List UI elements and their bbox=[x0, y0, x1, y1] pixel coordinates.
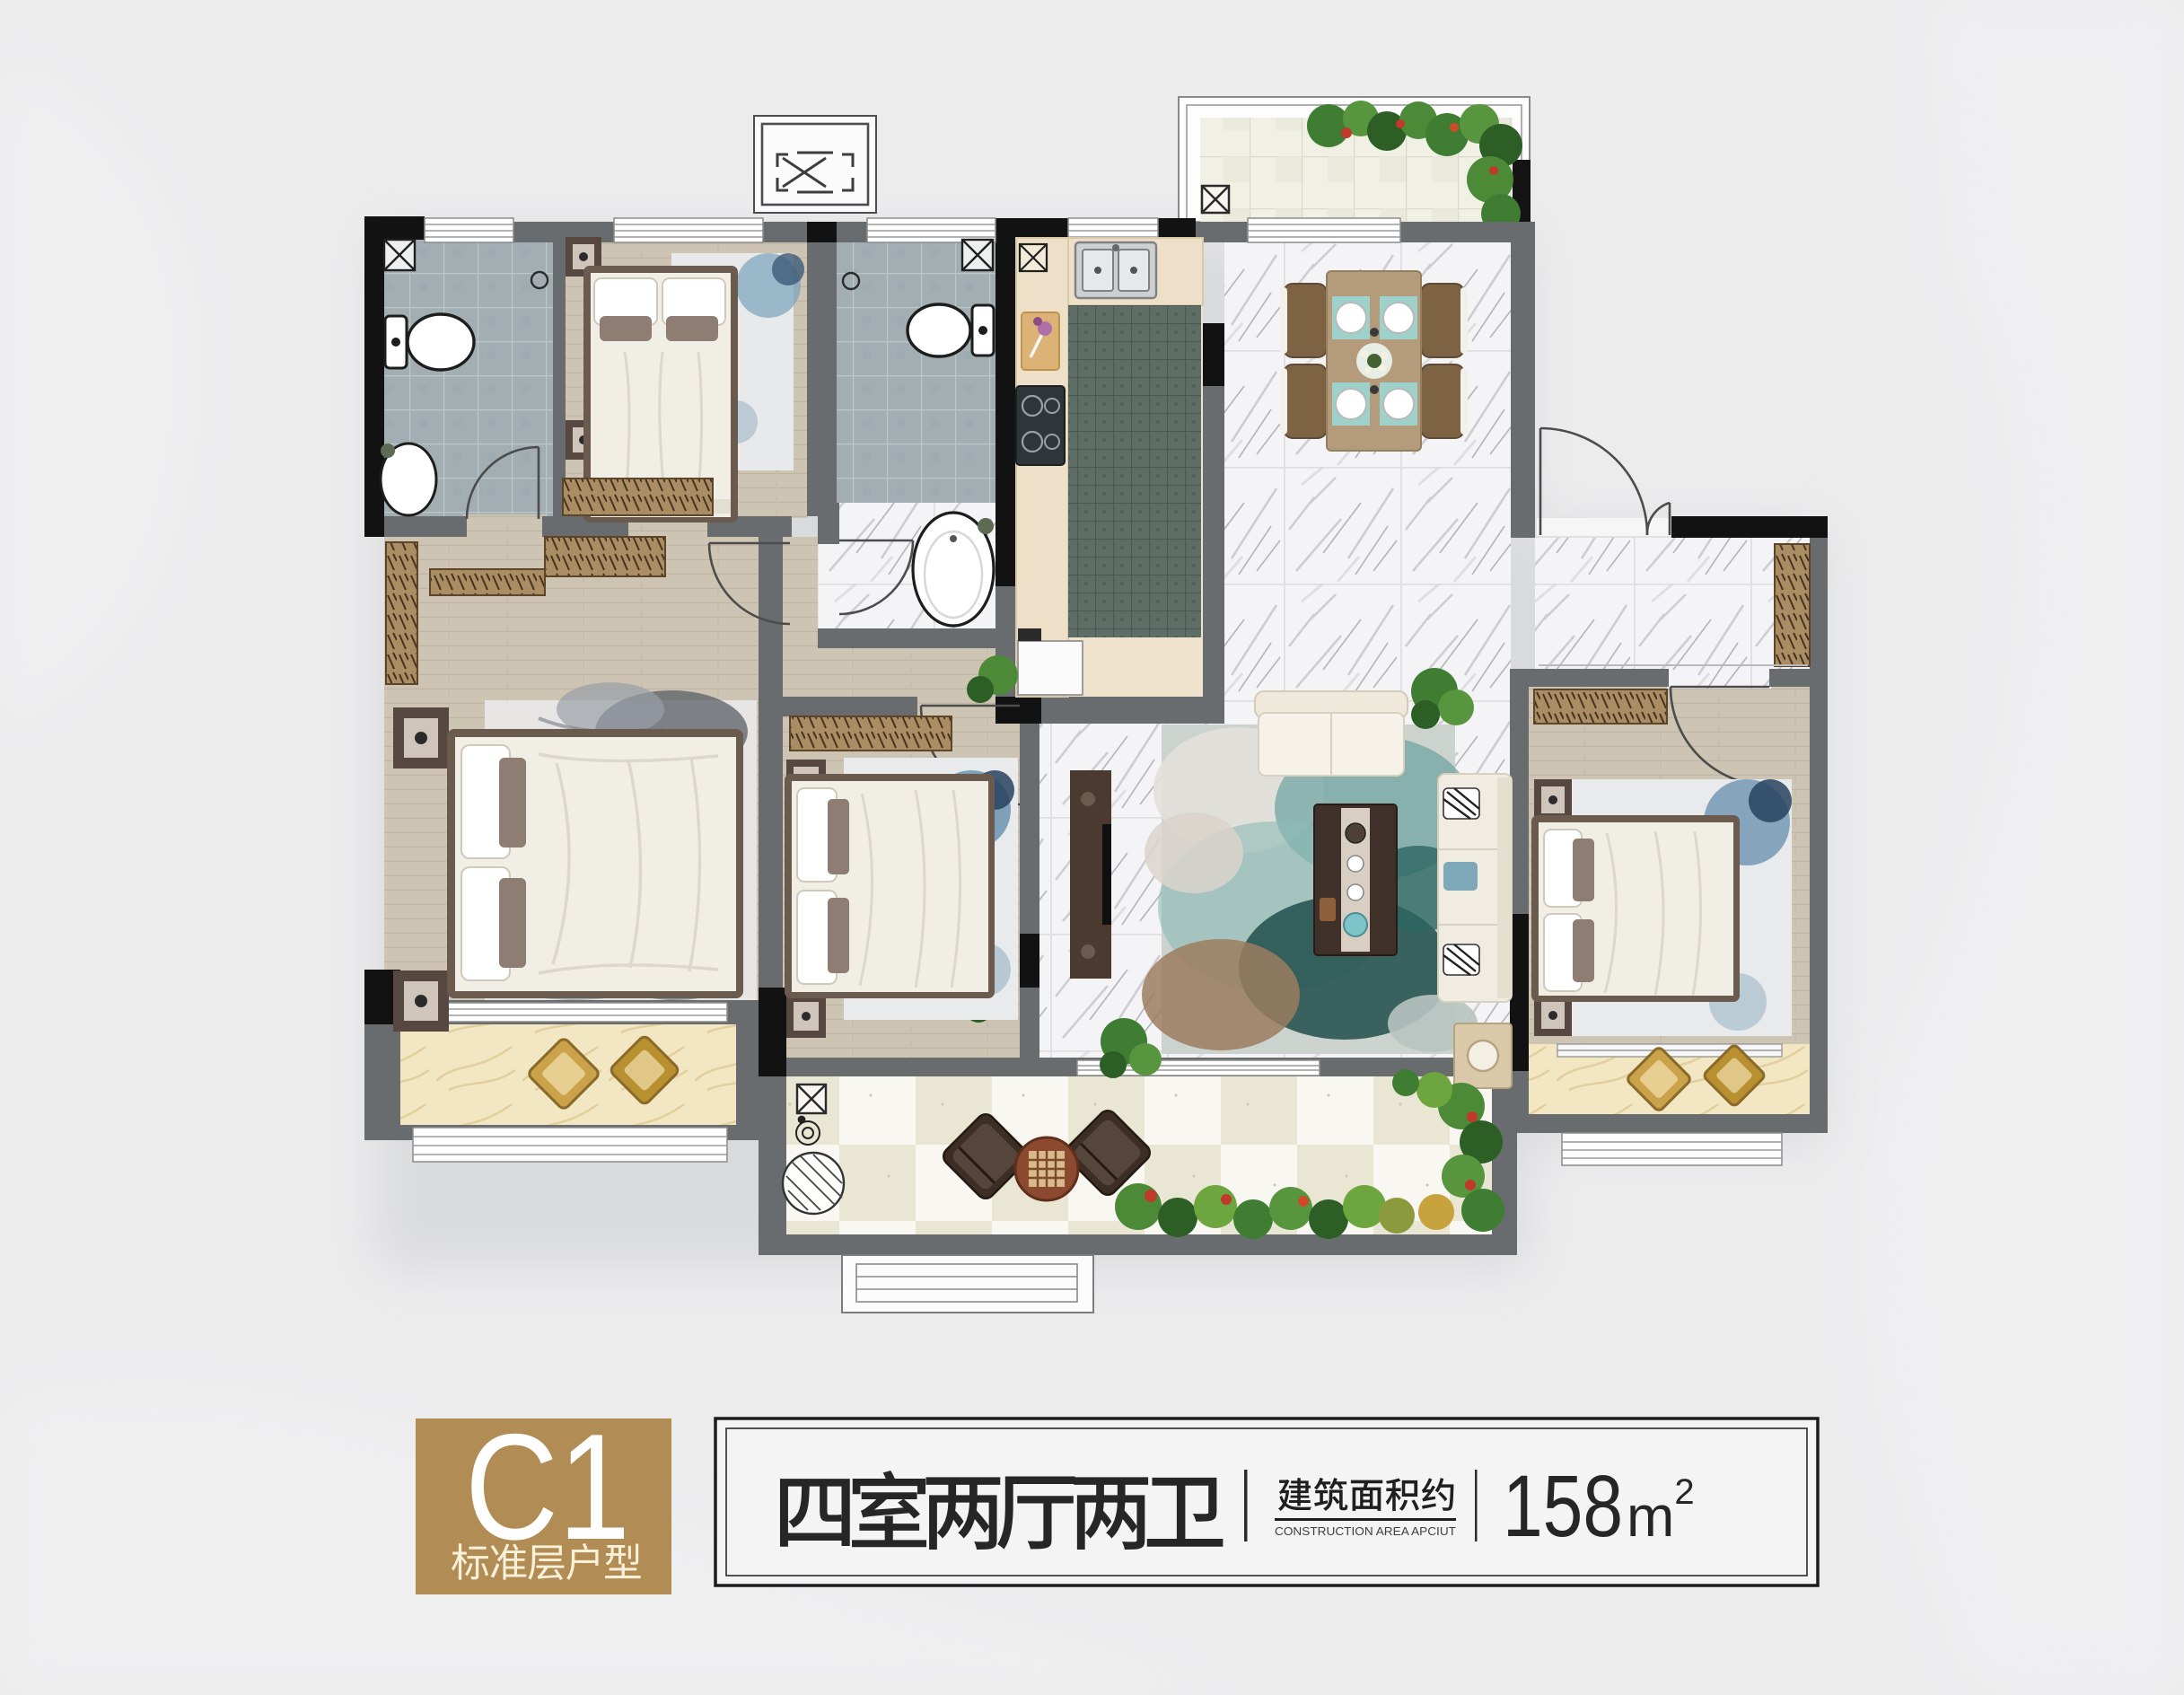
svg-text:CONSTRUCTION AREA APCIUT: CONSTRUCTION AREA APCIUT bbox=[1275, 1525, 1456, 1538]
